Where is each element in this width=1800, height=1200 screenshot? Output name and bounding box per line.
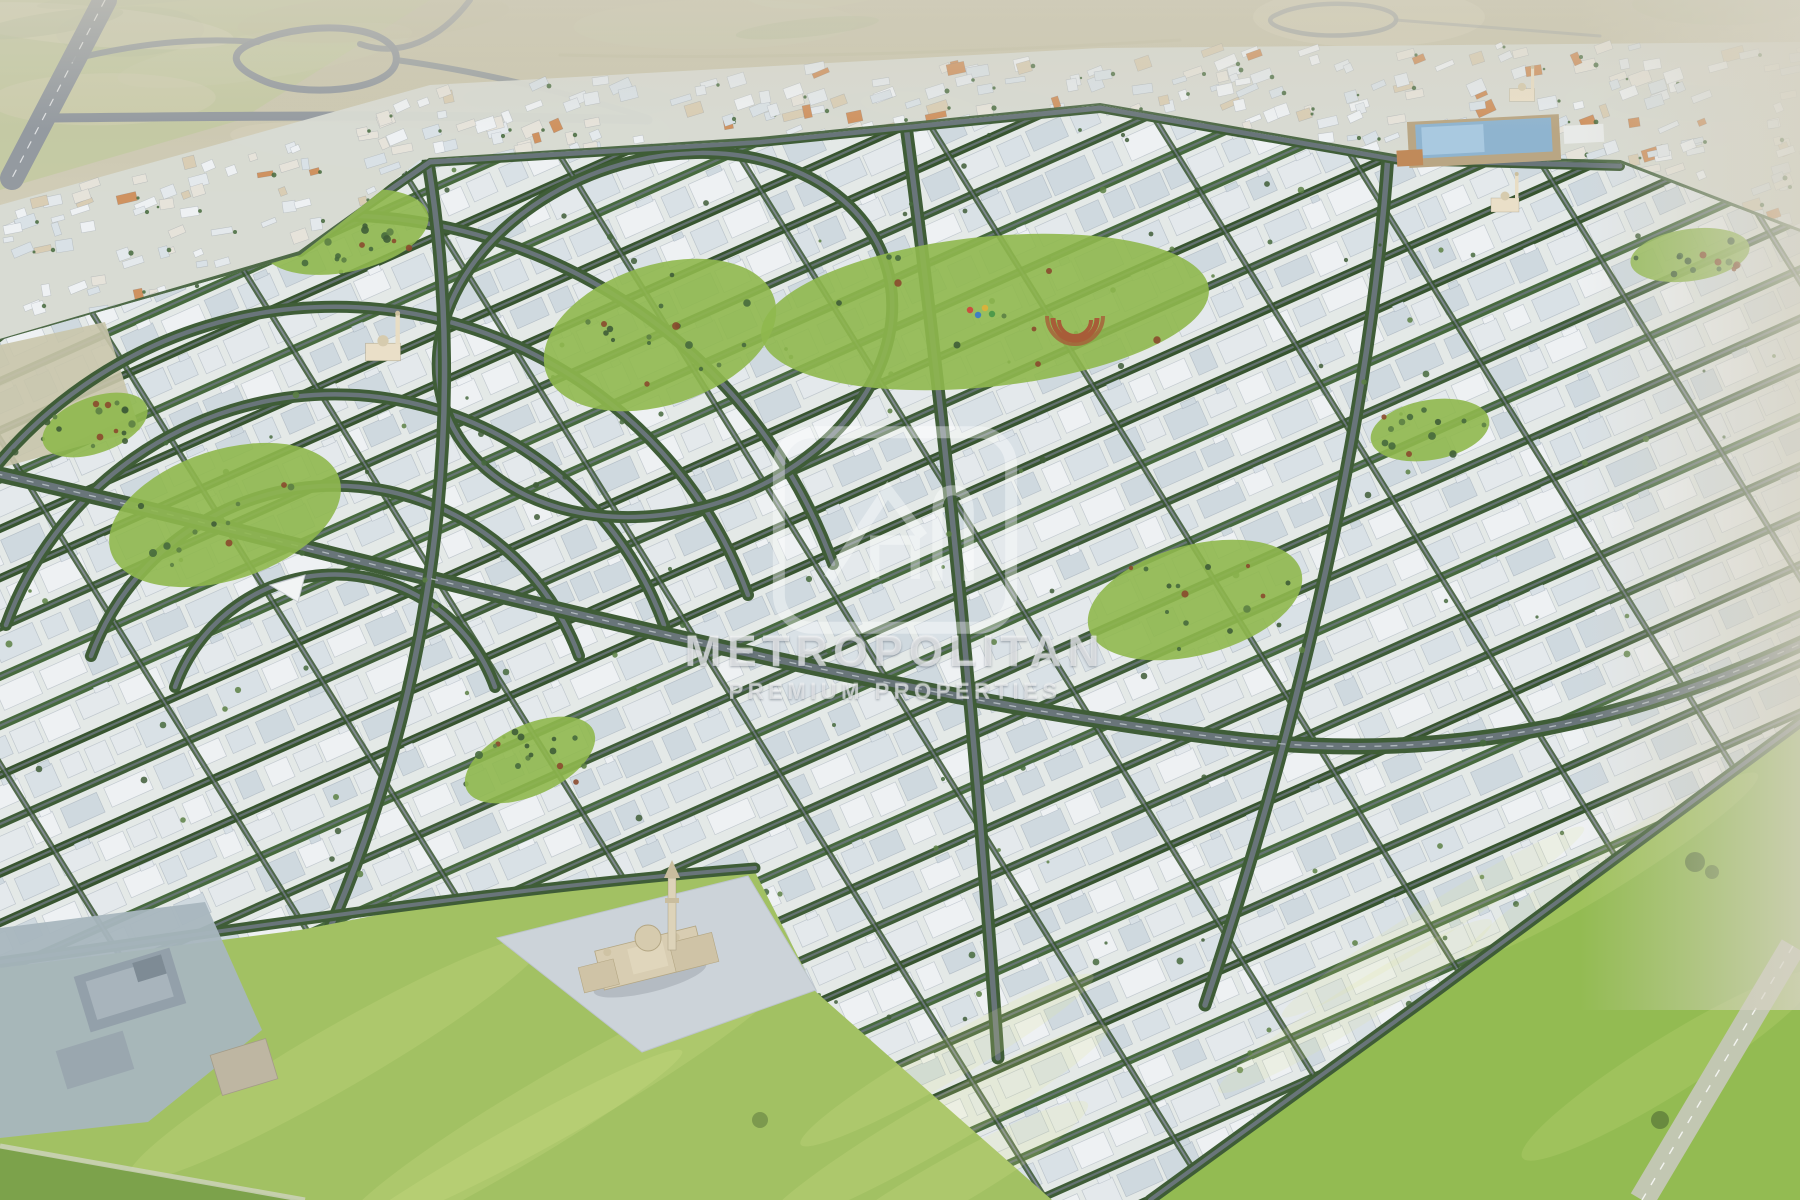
mosque-dome (635, 925, 661, 951)
right-edge-haze (1580, 0, 1800, 1010)
aerial-masterplan-render: METROPOLITAN PREMIUM PROPERTIES (0, 0, 1800, 1200)
top-haze (0, 0, 1800, 130)
community-render-canvas (0, 0, 1800, 1200)
